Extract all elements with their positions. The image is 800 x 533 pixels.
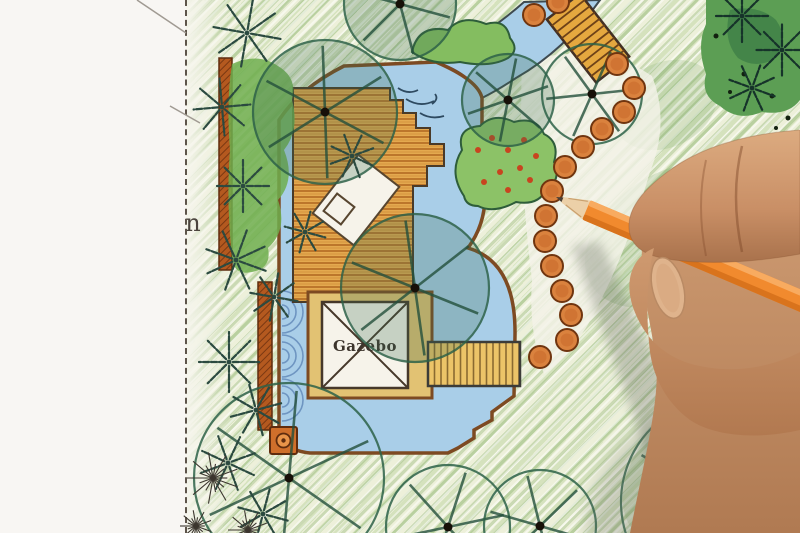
stepping-stone xyxy=(572,136,594,158)
leader-line-ends xyxy=(137,0,200,123)
stepping-stone xyxy=(560,304,582,326)
stepping-stone xyxy=(613,101,635,123)
tree-symbol xyxy=(462,54,554,146)
stepping-stone xyxy=(623,77,645,99)
tree-symbol xyxy=(341,214,489,362)
stepping-stone xyxy=(556,329,578,351)
stepping-stone xyxy=(541,255,563,277)
starburst-plant-symbol xyxy=(180,510,211,533)
fern-symbol xyxy=(199,332,259,392)
stepping-stone xyxy=(606,53,628,75)
stepping-stone xyxy=(551,280,573,302)
stepping-stone xyxy=(523,4,545,26)
tree-symbol xyxy=(484,470,596,533)
fern-symbol xyxy=(216,159,270,213)
tree-symbol xyxy=(253,40,397,184)
stepping-stone xyxy=(547,0,569,13)
plan-drawing: Gazebo xyxy=(0,0,800,533)
stepping-stone xyxy=(535,205,557,227)
stepping-stone xyxy=(529,346,551,368)
stepping-stone xyxy=(591,118,613,140)
stepping-stone xyxy=(534,230,556,252)
stepping-stone xyxy=(554,156,576,178)
photo-landscape-plan: Patio Wall Fountain xyxy=(0,0,800,533)
